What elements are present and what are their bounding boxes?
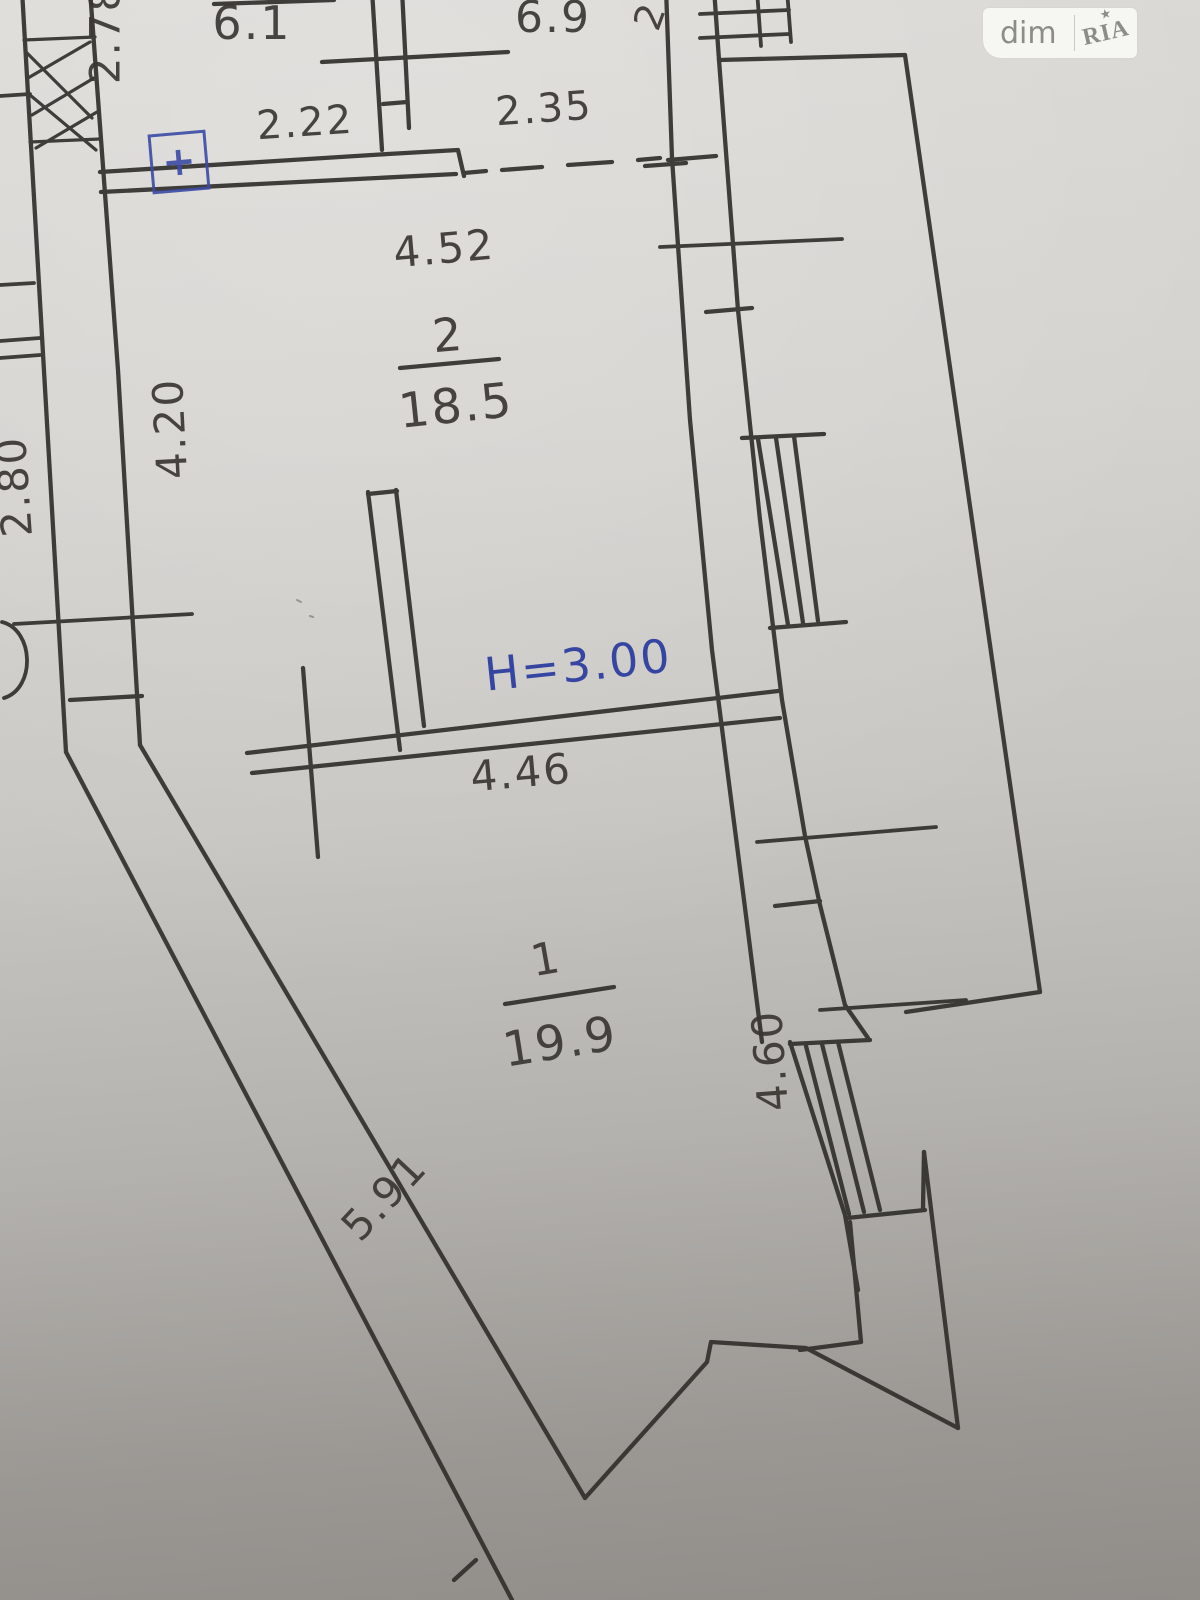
- diagonal-wall: [66, 745, 585, 1600]
- left-wall: [22, 0, 142, 752]
- plus-icon: +: [160, 138, 197, 187]
- dimension-4.60: 4.60: [741, 989, 800, 1132]
- dimension-2.78: 2.78: [81, 0, 130, 94]
- paper-specks: [297, 600, 313, 617]
- room-1-number: 1: [512, 929, 580, 990]
- partition-wall: [368, 490, 424, 750]
- watermark-dim-text: dim: [983, 16, 1074, 51]
- floor-plan-photo: 2.78 6.1 6.9 2 2.22 2.35 4.52 2 18.5 4.2…: [0, 0, 1200, 1600]
- window-1: [742, 434, 846, 628]
- door-opening-dashes: [464, 158, 660, 173]
- bay-outline: [585, 1152, 958, 1498]
- dimension-2.35: 2.35: [473, 81, 616, 137]
- watermark-badge: dim ★ RIA: [983, 8, 1137, 58]
- room-2-number: 2: [406, 305, 490, 366]
- room-area-6.9: 6.9: [493, 0, 613, 43]
- door-swing-arc: [2, 622, 27, 698]
- window-2: [790, 1040, 925, 1218]
- room-area-6.1: 6.1: [192, 0, 312, 50]
- dimension-4.20: 4.20: [142, 362, 198, 494]
- watermark-ria-logo: ★ RIA: [1073, 13, 1139, 53]
- dimension-2.22: 2.22: [234, 95, 377, 151]
- electric-symbol-box: +: [147, 130, 210, 195]
- balcony-outline: [719, 55, 1040, 1012]
- floor-plan-drawing: [0, 0, 1200, 1600]
- star-icon: ★: [1099, 6, 1113, 21]
